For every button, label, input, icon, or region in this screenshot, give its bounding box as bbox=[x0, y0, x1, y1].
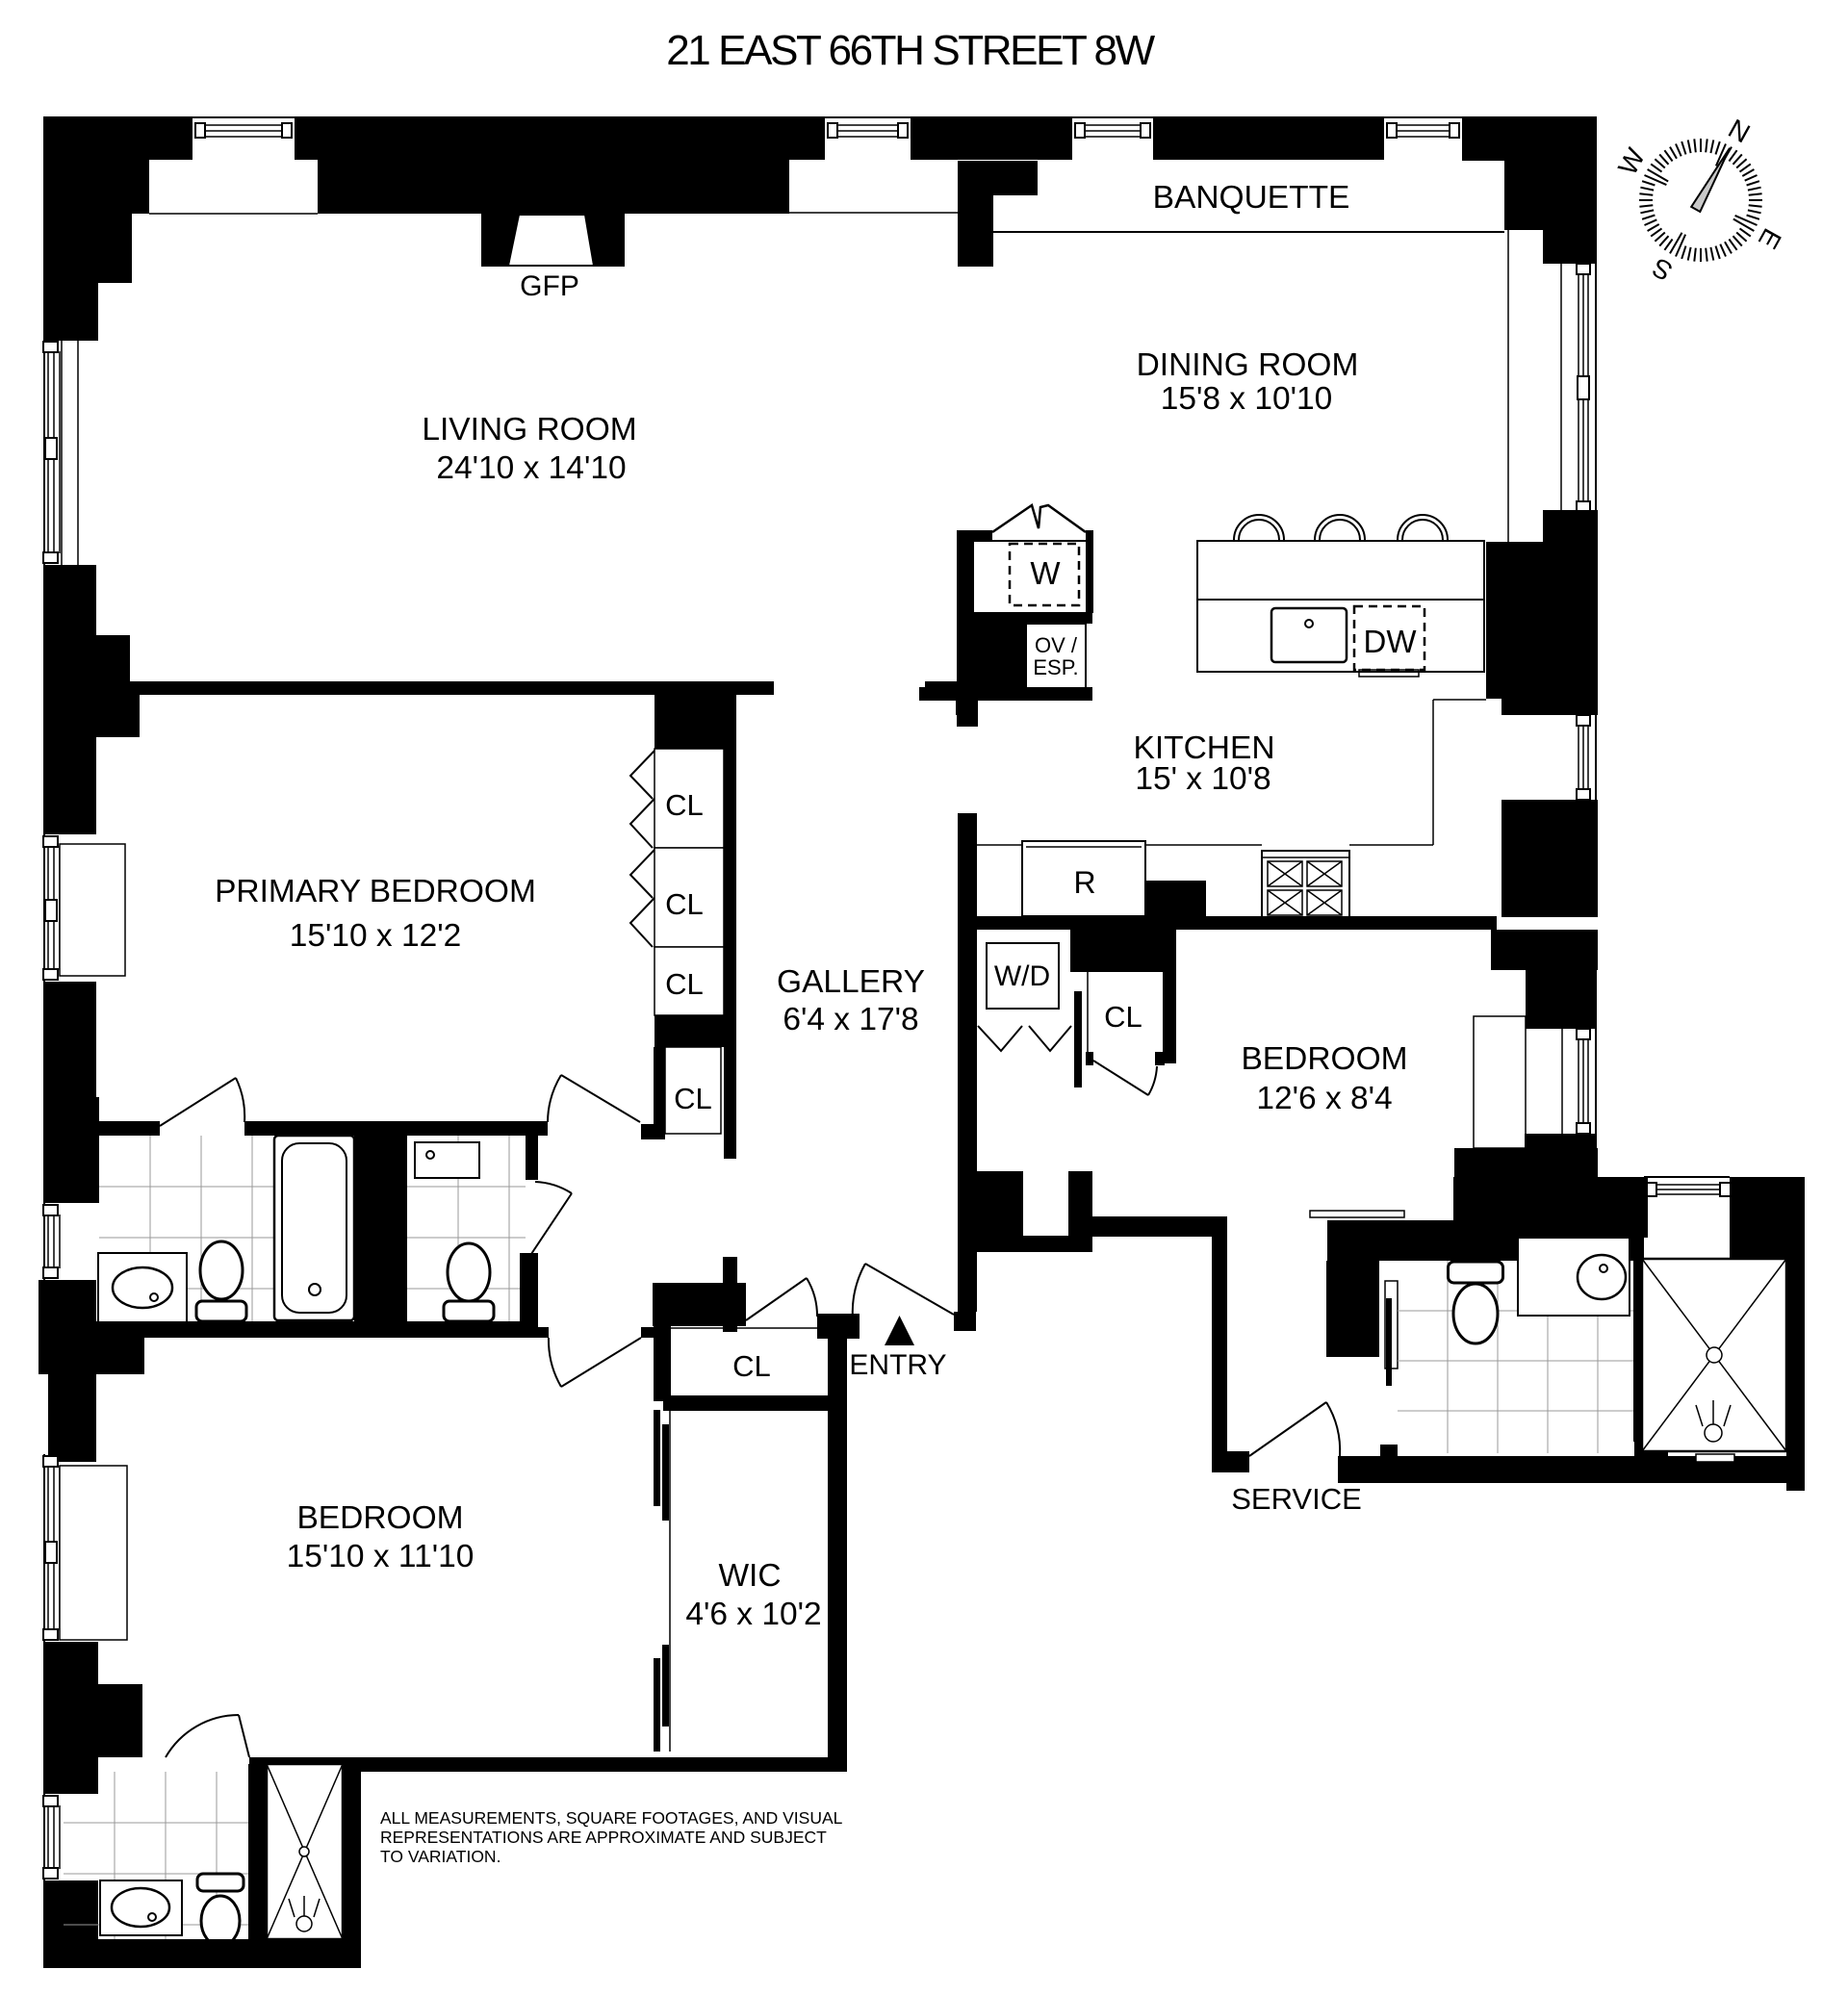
svg-text:TO VARIATION.: TO VARIATION. bbox=[380, 1847, 500, 1866]
svg-text:DINING ROOM: DINING ROOM bbox=[1137, 347, 1359, 383]
svg-text:ENTRY: ENTRY bbox=[849, 1349, 946, 1381]
svg-text:R: R bbox=[1073, 865, 1095, 900]
svg-text:GALLERY: GALLERY bbox=[777, 964, 925, 1000]
svg-text:DW: DW bbox=[1364, 624, 1418, 659]
svg-text:WIC: WIC bbox=[718, 1558, 781, 1594]
svg-text:BEDROOM: BEDROOM bbox=[296, 1500, 463, 1536]
svg-text:CL: CL bbox=[1104, 1000, 1142, 1034]
svg-text:4'6 x 10'2: 4'6 x 10'2 bbox=[685, 1597, 821, 1632]
svg-text:PRIMARY BEDROOM: PRIMARY BEDROOM bbox=[215, 874, 536, 909]
svg-text:W: W bbox=[1030, 555, 1061, 591]
svg-text:21 EAST 66TH STREET 8W: 21 EAST 66TH STREET 8W bbox=[666, 27, 1155, 74]
svg-text:12'6 x 8'4: 12'6 x 8'4 bbox=[1256, 1081, 1392, 1116]
svg-text:CL: CL bbox=[665, 788, 704, 822]
svg-text:CL: CL bbox=[732, 1349, 771, 1383]
svg-text:ALL MEASUREMENTS, SQUARE FOOTA: ALL MEASUREMENTS, SQUARE FOOTAGES, AND V… bbox=[380, 1808, 843, 1828]
svg-text:W/D: W/D bbox=[994, 960, 1050, 992]
svg-text:LIVING ROOM: LIVING ROOM bbox=[422, 412, 636, 448]
svg-text:CL: CL bbox=[665, 967, 704, 1001]
svg-text:BEDROOM: BEDROOM bbox=[1241, 1041, 1407, 1077]
svg-text:15'8 x 10'10: 15'8 x 10'10 bbox=[1161, 381, 1333, 417]
svg-text:BANQUETTE: BANQUETTE bbox=[1153, 180, 1350, 216]
svg-text:OV /: OV / bbox=[1035, 633, 1078, 657]
svg-text:GFP: GFP bbox=[520, 270, 579, 302]
svg-text:15'10 x 12'2: 15'10 x 12'2 bbox=[290, 918, 462, 954]
svg-text:SERVICE: SERVICE bbox=[1231, 1482, 1362, 1516]
svg-text:CL: CL bbox=[674, 1082, 712, 1115]
svg-text:6'4 x 17'8: 6'4 x 17'8 bbox=[783, 1002, 918, 1037]
svg-text:ESP.: ESP. bbox=[1033, 655, 1078, 679]
svg-text:CL: CL bbox=[665, 887, 704, 921]
svg-text:REPRESENTATIONS ARE APPROXIMAT: REPRESENTATIONS ARE APPROXIMATE AND SUBJ… bbox=[380, 1828, 827, 1847]
svg-text:15'10 x 11'10: 15'10 x 11'10 bbox=[287, 1539, 475, 1574]
svg-text:24'10 x 14'10: 24'10 x 14'10 bbox=[436, 450, 626, 486]
svg-text:15' x 10'8: 15' x 10'8 bbox=[1135, 761, 1270, 797]
